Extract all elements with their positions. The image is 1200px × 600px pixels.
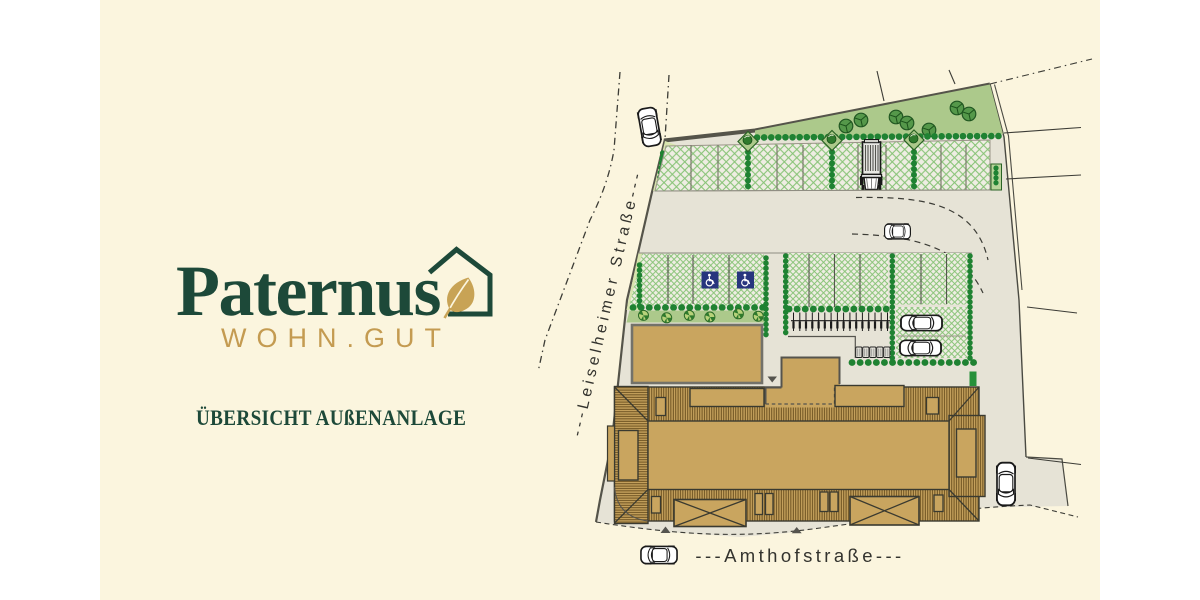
svg-text:---Amthofstraße---: ---Amthofstraße--- — [695, 545, 904, 566]
